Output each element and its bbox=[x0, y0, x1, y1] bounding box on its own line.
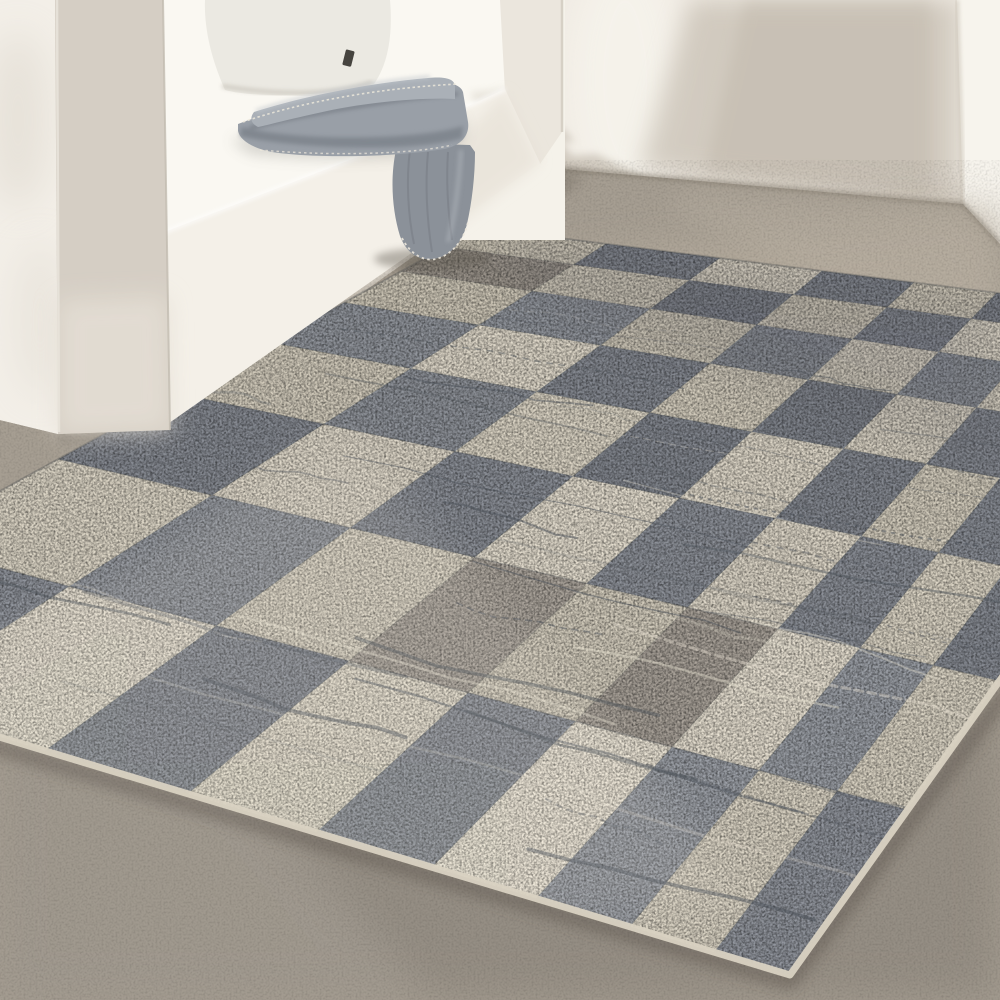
pillar-lower-light bbox=[58, 296, 170, 434]
scene-canvas bbox=[0, 0, 1000, 1000]
pillow bbox=[205, 0, 391, 95]
room-photo bbox=[0, 0, 1000, 1000]
